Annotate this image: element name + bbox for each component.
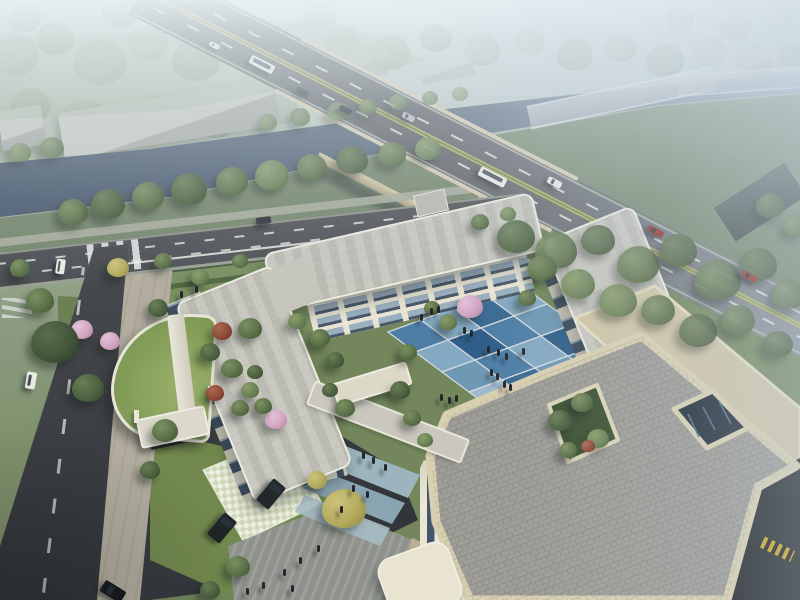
person <box>490 369 493 376</box>
people-layer <box>0 0 800 600</box>
person <box>470 330 473 337</box>
person <box>505 353 508 360</box>
person <box>317 545 320 552</box>
person <box>299 557 302 564</box>
person <box>430 308 433 315</box>
person <box>340 506 343 513</box>
person <box>283 569 286 576</box>
person <box>180 291 183 298</box>
person <box>487 346 490 353</box>
person <box>437 306 440 313</box>
person <box>509 384 512 391</box>
person <box>246 588 249 595</box>
person <box>372 457 375 464</box>
person <box>522 348 525 355</box>
person <box>503 381 506 388</box>
person <box>366 491 369 498</box>
person <box>352 485 355 492</box>
person <box>362 452 365 459</box>
person <box>291 585 294 592</box>
person <box>455 395 458 402</box>
person <box>463 327 466 334</box>
person <box>496 373 499 380</box>
person <box>384 464 387 471</box>
person <box>448 397 451 404</box>
person <box>440 394 443 401</box>
person <box>195 286 198 293</box>
person <box>262 582 265 589</box>
person <box>497 349 500 356</box>
architectural-rendering <box>0 0 800 600</box>
person <box>420 314 423 321</box>
